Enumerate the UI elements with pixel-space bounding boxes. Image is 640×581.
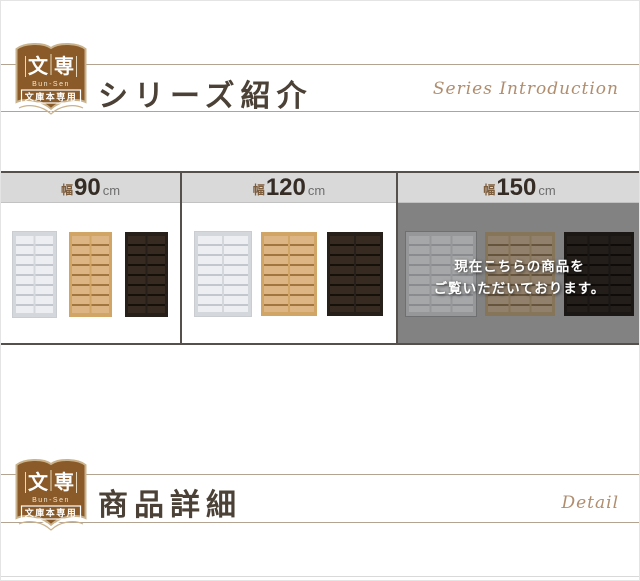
product-section-150cm-current: 幅 150 cm 現在こちらの商品を ご覧いただいております。: [398, 173, 640, 343]
bookshelf-90cm-white: [13, 232, 56, 317]
logo-tagline: 文庫本専用: [24, 507, 78, 518]
tab-width-unit: cm: [538, 183, 555, 198]
tab-width-value: 150: [496, 176, 536, 200]
series-header: 文 専 Bun-Sen 文庫本専用 シリーズ紹介 Series Introduc…: [1, 1, 639, 151]
shelf-color-row-120cm: [182, 232, 396, 316]
current-item-notice: 現在こちらの商品を ご覧いただいております。: [398, 256, 640, 300]
logo-kanji-right: 専: [54, 54, 74, 78]
product-section-120cm[interactable]: 幅 120 cm: [182, 173, 398, 343]
bunsen-logo: 文 専 Bun-Sen 文庫本専用: [12, 455, 90, 539]
tab-width-90[interactable]: 幅 90 cm: [1, 173, 180, 203]
detail-header: 文 専 Bun-Sen 文庫本専用 商品詳細 Detail: [1, 441, 639, 576]
current-item-notice-line2: ご覧いただいております。: [398, 278, 640, 300]
bookshelf-90cm-natural: [69, 232, 112, 317]
tab-width-unit: cm: [103, 183, 120, 198]
header-rule-top: [1, 474, 639, 475]
page-bottom-divider: [1, 576, 639, 577]
current-item-notice-line1: 現在こちらの商品を: [398, 256, 640, 278]
header-rule-bottom: [1, 522, 639, 523]
bookshelf-120cm-dark-brown: [327, 232, 383, 316]
detail-title: 商品詳細: [98, 480, 242, 524]
series-lineup-band: 幅 90 cm 幅 120 cm 幅 150 cm: [1, 171, 640, 345]
tab-width-value: 120: [266, 176, 306, 200]
tab-width-prefix: 幅: [483, 181, 495, 198]
tab-width-unit: cm: [308, 183, 325, 198]
logo-kanji-left: 文: [28, 470, 49, 494]
logo-romaji: Bun-Sen: [32, 497, 70, 504]
detail-script-label: Detail: [561, 493, 619, 513]
bookshelf-90cm-dark-brown: [125, 232, 168, 317]
header-rule-bottom: [1, 111, 639, 112]
shelf-color-row-90cm: [1, 232, 180, 317]
product-images-90cm: [1, 203, 180, 343]
tab-width-prefix: 幅: [253, 181, 265, 198]
bookshelf-120cm-white: [195, 232, 251, 316]
product-images-120cm: [182, 203, 396, 343]
bunsen-logo: 文 専 Bun-Sen 文庫本専用: [12, 39, 90, 123]
tab-width-150[interactable]: 幅 150 cm: [398, 173, 640, 203]
header-rule-top: [1, 64, 639, 65]
series-title: シリーズ紹介: [98, 71, 313, 115]
tab-width-prefix: 幅: [61, 181, 73, 198]
bookshelf-120cm-natural: [261, 232, 317, 316]
product-page: 文 専 Bun-Sen 文庫本専用 シリーズ紹介 Series Introduc…: [0, 0, 640, 581]
product-images-150cm-dimmed: 現在こちらの商品を ご覧いただいております。: [398, 203, 640, 343]
logo-tagline: 文庫本専用: [24, 91, 78, 102]
logo-kanji-right: 専: [54, 470, 74, 494]
logo-romaji: Bun-Sen: [32, 81, 70, 88]
logo-kanji-left: 文: [28, 54, 49, 78]
tab-width-120[interactable]: 幅 120 cm: [182, 173, 396, 203]
product-section-90cm[interactable]: 幅 90 cm: [1, 173, 182, 343]
series-script-label: Series Introduction: [433, 79, 619, 99]
tab-width-value: 90: [74, 176, 101, 200]
